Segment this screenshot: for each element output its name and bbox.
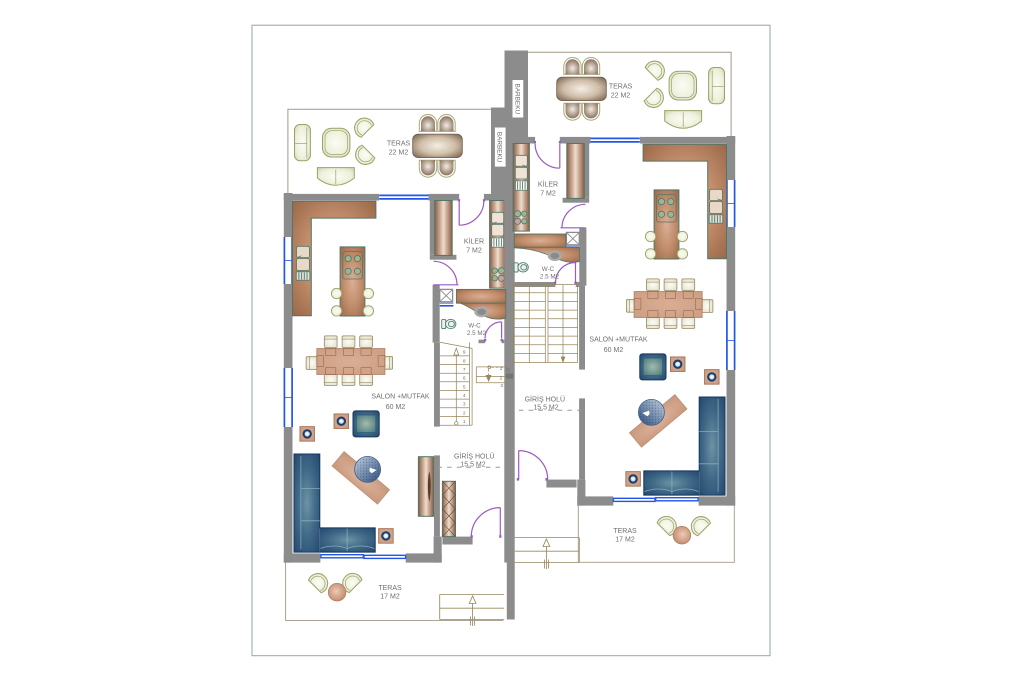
svg-text:cat: cat xyxy=(506,374,512,379)
svg-text:60 M2: 60 M2 xyxy=(604,347,624,354)
svg-text:2: 2 xyxy=(500,375,503,381)
svg-text:ty: ty xyxy=(506,368,510,374)
svg-text:GİRİŞ HOLÜ: GİRİŞ HOLÜ xyxy=(454,451,494,460)
svg-text:9: 9 xyxy=(463,349,466,355)
svg-text:BARBEKU: BARBEKU xyxy=(496,132,503,163)
svg-text:4: 4 xyxy=(463,393,466,399)
svg-text:6: 6 xyxy=(463,376,466,382)
svg-text:7 M2: 7 M2 xyxy=(540,191,556,198)
svg-text:17 M2: 17 M2 xyxy=(615,537,635,544)
svg-text:3: 3 xyxy=(463,402,466,408)
svg-text:1: 1 xyxy=(463,419,466,425)
svg-text:22 M2: 22 M2 xyxy=(389,150,409,157)
svg-text:3: 3 xyxy=(500,383,503,389)
svg-text:KİLER: KİLER xyxy=(464,237,484,246)
svg-text:22 M2: 22 M2 xyxy=(611,93,631,100)
svg-text:2: 2 xyxy=(463,410,466,416)
svg-text:7 M2: 7 M2 xyxy=(466,248,482,255)
svg-text:W-C: W-C xyxy=(542,266,555,273)
svg-text:17 M2: 17 M2 xyxy=(380,594,400,601)
svg-text:BARBEKU: BARBEKU xyxy=(513,84,520,115)
svg-text:SALON +MUTFAK: SALON +MUTFAK xyxy=(371,394,429,401)
svg-text:TERAS: TERAS xyxy=(387,141,411,148)
svg-text:TERAS: TERAS xyxy=(378,585,402,592)
svg-text:TERAS: TERAS xyxy=(609,84,633,91)
svg-text:15.5 M2: 15.5 M2 xyxy=(533,404,558,411)
svg-text:GİRİŞ HOLÜ: GİRİŞ HOLÜ xyxy=(525,394,565,403)
svg-text:TERAS: TERAS xyxy=(613,528,637,535)
svg-text:5: 5 xyxy=(463,384,466,390)
svg-text:15.5 M2: 15.5 M2 xyxy=(460,461,485,468)
svg-text:2.5 M2: 2.5 M2 xyxy=(540,273,560,280)
svg-text:60 M2: 60 M2 xyxy=(386,404,406,411)
svg-text:7: 7 xyxy=(463,367,466,373)
svg-text:2.5 M2: 2.5 M2 xyxy=(467,330,487,337)
svg-text:W-C: W-C xyxy=(468,323,481,330)
svg-text:KİLER: KİLER xyxy=(538,180,558,189)
svg-text:8: 8 xyxy=(463,358,466,364)
svg-text:SALON +MUTFAK: SALON +MUTFAK xyxy=(589,337,647,344)
svg-text:1: 1 xyxy=(500,366,503,372)
